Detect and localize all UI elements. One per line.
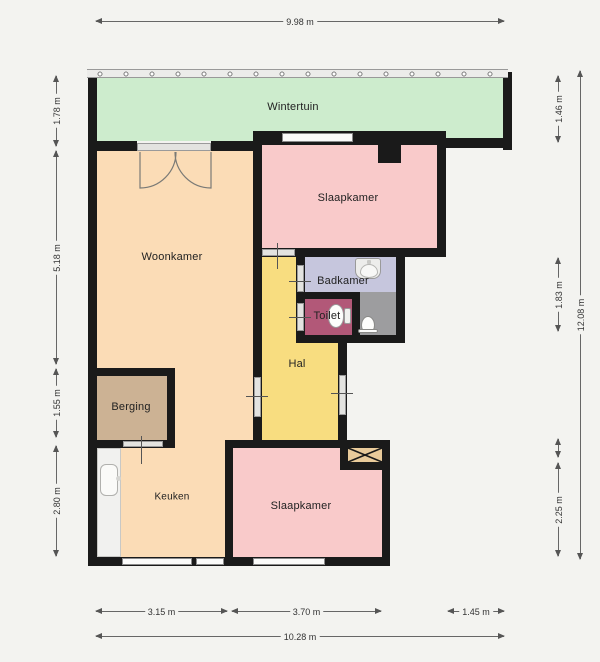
dimension-right-2: 1.83 m bbox=[554, 257, 563, 332]
dimension-bottom-1: 3.15 m bbox=[95, 607, 228, 616]
window-keuken-1 bbox=[122, 558, 192, 565]
french-doors-swing bbox=[130, 144, 220, 199]
kitchen-sink bbox=[100, 464, 118, 496]
dimension-top-width: 9.98 m bbox=[95, 17, 505, 26]
dimension-bottom-3: 1.45 m bbox=[447, 607, 505, 616]
wall-wintertuin-bottom-right bbox=[437, 138, 512, 148]
window-slaapkamer2 bbox=[253, 558, 325, 565]
wall-badkamer-right bbox=[396, 248, 405, 343]
dimension-right-small-segment bbox=[554, 438, 563, 458]
label-slaapkamer-2: Slaapkamer bbox=[271, 500, 332, 512]
door-toilet-tick bbox=[289, 317, 311, 318]
room-hal-corridor bbox=[262, 257, 296, 343]
dimension-left-4: 2.80 m bbox=[52, 445, 61, 557]
label-badkamer: Badkamer bbox=[317, 275, 369, 287]
wall-slaapkamer2-left bbox=[225, 440, 233, 566]
wall-shaft-bottom bbox=[340, 462, 390, 470]
door-slaapkamer1-tick bbox=[277, 243, 278, 269]
dimension-right-3: 2.25 m bbox=[554, 462, 563, 557]
wall-slaapkamer2-right bbox=[382, 440, 390, 566]
window-slaapkamer1 bbox=[282, 133, 353, 142]
dimension-left-3: 1.55 m bbox=[52, 368, 61, 438]
label-wintertuin: Wintertuin bbox=[267, 101, 319, 113]
door-woonkamer-hal bbox=[254, 377, 261, 417]
door-berging bbox=[123, 441, 163, 447]
dimension-left-1: 1.78 m bbox=[52, 75, 61, 147]
wall-slaapkamer1-right bbox=[437, 131, 446, 257]
dimension-bottom-2: 3.70 m bbox=[231, 607, 382, 616]
dimension-right-total: 12.08 m bbox=[576, 70, 585, 560]
front-door-tick bbox=[331, 393, 353, 394]
toilet-fixture-tank bbox=[344, 308, 351, 324]
floor-plan: Wintertuin Slaapkamer Woonkamer Badkamer… bbox=[0, 0, 600, 662]
label-berging: Berging bbox=[111, 401, 150, 413]
door-woonkamer-hal-tick bbox=[246, 396, 268, 397]
wall-slaapkamer2-top bbox=[225, 440, 390, 448]
door-berging-tick bbox=[141, 436, 142, 464]
wall-berging-top bbox=[88, 368, 175, 376]
label-woonkamer: Woonkamer bbox=[142, 251, 203, 263]
kitchen-sink-tap bbox=[116, 476, 121, 481]
door-badkamer-tick bbox=[289, 281, 311, 282]
label-hal: Hal bbox=[288, 358, 305, 370]
window-keuken-2 bbox=[196, 558, 224, 565]
label-keuken: Keuken bbox=[154, 492, 189, 503]
door-slaapkamer1 bbox=[262, 249, 295, 256]
front-door bbox=[339, 375, 346, 415]
label-slaapkamer-1: Slaapkamer bbox=[318, 192, 379, 204]
wall-sanitary-bottom bbox=[296, 335, 405, 343]
door-badkamer bbox=[297, 265, 304, 292]
wall-toilet-top bbox=[296, 292, 360, 299]
glass-facade-window bbox=[87, 69, 508, 78]
wall-notch-column bbox=[378, 145, 401, 163]
washroom-fixture-base bbox=[358, 329, 378, 333]
dimension-right-1: 1.46 m bbox=[554, 75, 563, 143]
dimension-left-2: 5.18 m bbox=[52, 150, 61, 365]
dimension-bottom-total: 10.28 m bbox=[95, 632, 505, 641]
shaft bbox=[348, 448, 382, 462]
wall-berging-right bbox=[167, 368, 175, 448]
label-toilet: Toilet bbox=[314, 310, 341, 322]
